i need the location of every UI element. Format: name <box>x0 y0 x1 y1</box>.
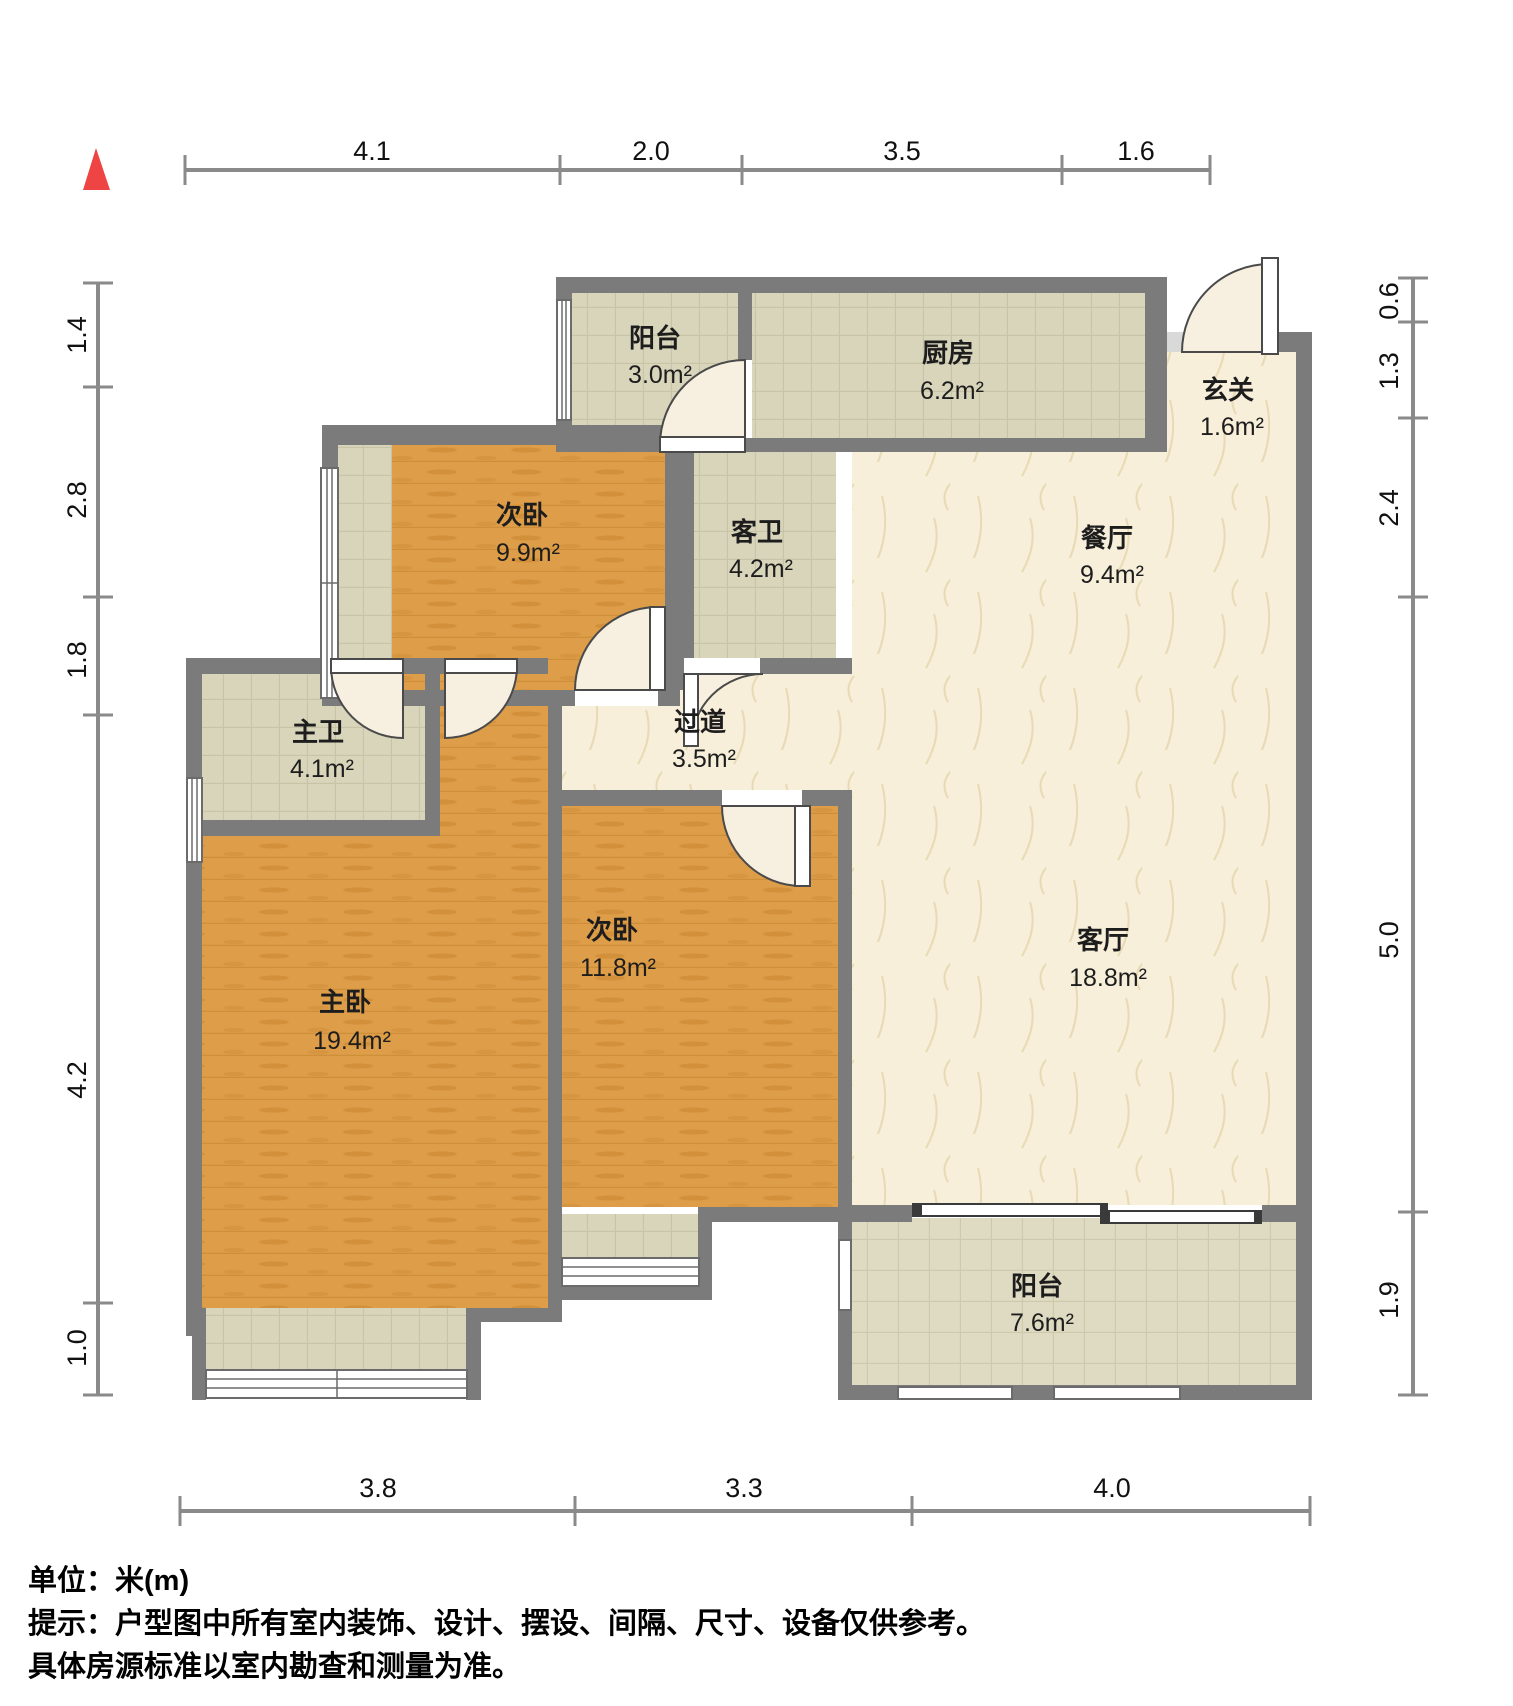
room-area-kitchen: 6.2m² <box>920 377 984 405</box>
disclaimer-line1: 提示：户型图中所有室内装饰、设计、摆设、间隔、尺寸、设备仅供参考。 <box>28 1603 1128 1646</box>
floor-balcony-bottom <box>852 1218 1296 1385</box>
disclaimer-line2: 具体房源标准以室内勘查和测量为准。 <box>28 1646 1128 1689</box>
dimension-right: 0.6 1.3 2.4 5.0 1.9 <box>1374 278 1428 1395</box>
room-area-master-bedroom: 19.4m² <box>313 1027 391 1055</box>
room-area-entry-hall: 1.6m² <box>1200 413 1264 441</box>
floor-plan-svg: 阳台 3.0m² 厨房 6.2m² 玄关 1.6m² 次卧 9.9m² 客卫 4… <box>0 0 1513 1701</box>
dim-label-top-3: 3.5 <box>883 136 921 166</box>
north-arrow-icon <box>83 148 110 190</box>
room-label-corridor: 过道 <box>674 707 726 737</box>
room-label-balcony-top: 阳台 <box>629 323 681 353</box>
room-area-corridor: 3.5m² <box>672 745 736 773</box>
room-area-balcony-bottom: 7.6m² <box>1010 1309 1074 1337</box>
dimension-top: 4.1 2.0 3.5 1.6 <box>185 136 1210 185</box>
dim-label-top-1: 4.1 <box>353 136 391 166</box>
room-label-bedroom-second-top: 次卧 <box>496 500 548 530</box>
dim-label-left-1: 1.4 <box>62 316 92 354</box>
floor-master-bedroom <box>202 836 548 1308</box>
window-balcony-top-icon <box>557 300 571 420</box>
room-area-balcony-top: 3.0m² <box>628 361 692 389</box>
dim-label-right-2: 1.3 <box>1374 352 1404 390</box>
room-area-guest-bathroom: 4.2m² <box>729 555 793 583</box>
room-label-balcony-bottom: 阳台 <box>1011 1271 1063 1301</box>
dim-label-top-2: 2.0 <box>632 136 670 166</box>
floor-corridor-left <box>548 706 660 790</box>
dimension-bottom: 3.8 3.3 4.0 <box>180 1473 1310 1526</box>
dim-label-right-1: 0.6 <box>1374 282 1404 320</box>
dim-label-right-3: 2.4 <box>1374 489 1404 527</box>
dim-label-left-4: 4.2 <box>62 1061 92 1099</box>
room-area-bedroom-second-bottom: 11.8m² <box>580 954 656 982</box>
room-label-entry-hall: 玄关 <box>1202 375 1254 405</box>
room-label-master-bathroom: 主卫 <box>292 717 344 747</box>
floor-master-baywindow <box>206 1308 466 1372</box>
dim-label-left-3: 1.8 <box>62 641 92 679</box>
room-label-guest-bathroom: 客卫 <box>731 517 783 547</box>
dim-label-right-5: 1.9 <box>1374 1281 1404 1319</box>
unit-note: 单位：米(m) <box>28 1560 1128 1603</box>
room-area-dining-room: 9.4m² <box>1080 561 1144 589</box>
entry-door-icon <box>1167 258 1278 354</box>
room-area-bedroom-second-top: 9.9m² <box>496 539 560 567</box>
room-label-master-bedroom: 主卧 <box>319 987 371 1017</box>
window-master-bay-icon <box>206 1370 467 1398</box>
dim-label-bottom-1: 3.8 <box>359 1473 397 1503</box>
room-label-bedroom-second-bottom: 次卧 <box>586 915 638 945</box>
dim-label-right-4: 5.0 <box>1374 921 1404 959</box>
floor-bedroom-bottom-baywindow <box>562 1214 698 1260</box>
floor-bedroom-top-bay <box>338 445 392 690</box>
dim-label-top-4: 1.6 <box>1117 136 1155 166</box>
dim-label-left-2: 2.8 <box>62 481 92 519</box>
room-label-living-room: 客厅 <box>1077 925 1129 955</box>
dim-label-left-5: 1.0 <box>62 1329 92 1367</box>
window-bedroom-bottom-bay-icon <box>562 1258 699 1286</box>
window-master-bath-icon <box>187 778 202 862</box>
floor-dining-living <box>852 452 1296 1205</box>
floor-plan: 阳台 3.0m² 厨房 6.2m² 玄关 1.6m² 次卧 9.9m² 客卫 4… <box>0 0 1513 1701</box>
room-label-dining-room: 餐厅 <box>1081 523 1133 553</box>
room-label-kitchen: 厨房 <box>922 338 974 368</box>
window-balcony-bottom-left-icon <box>839 1240 851 1310</box>
footer-notes: 单位：米(m) 提示：户型图中所有室内装饰、设计、摆设、间隔、尺寸、设备仅供参考… <box>28 1560 1128 1689</box>
dim-label-bottom-2: 3.3 <box>725 1473 763 1503</box>
room-area-master-bathroom: 4.1m² <box>290 755 354 783</box>
dimension-left: 1.4 2.8 1.8 4.2 1.0 <box>62 283 113 1395</box>
room-area-living-room: 18.8m² <box>1069 964 1147 992</box>
dim-label-bottom-3: 4.0 <box>1093 1473 1131 1503</box>
